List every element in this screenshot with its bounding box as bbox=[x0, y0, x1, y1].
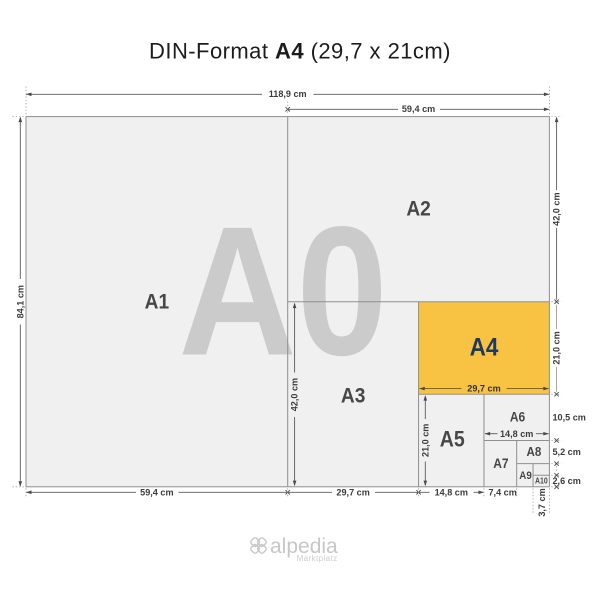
svg-text:118,9 cm: 118,9 cm bbox=[269, 89, 307, 99]
svg-text:A5: A5 bbox=[440, 427, 465, 451]
svg-text:42,0 cm: 42,0 cm bbox=[552, 192, 562, 225]
svg-text:42,0 cm: 42,0 cm bbox=[290, 378, 300, 411]
svg-text:84,1 cm: 84,1 cm bbox=[15, 285, 25, 318]
svg-text:Marktplatz: Marktplatz bbox=[297, 554, 338, 563]
svg-text:A3: A3 bbox=[341, 384, 365, 407]
svg-text:A2: A2 bbox=[406, 198, 430, 221]
svg-text:7,4 cm: 7,4 cm bbox=[489, 487, 517, 497]
svg-text:29,7 cm: 29,7 cm bbox=[336, 487, 369, 497]
svg-text:21,0 cm: 21,0 cm bbox=[420, 424, 430, 457]
svg-text:10,5 cm: 10,5 cm bbox=[553, 412, 586, 422]
svg-text:A9: A9 bbox=[519, 471, 532, 483]
svg-text:59,4 cm: 59,4 cm bbox=[140, 487, 173, 497]
svg-text:A0: A0 bbox=[178, 188, 387, 394]
svg-text:2,6 cm: 2,6 cm bbox=[553, 476, 581, 486]
svg-text:DIN-Format A4 (29,7 x 21cm): DIN-Format A4 (29,7 x 21cm) bbox=[149, 38, 451, 63]
svg-text:14,8 cm: 14,8 cm bbox=[435, 487, 468, 497]
svg-text:59,4 cm: 59,4 cm bbox=[402, 104, 435, 114]
svg-text:A1: A1 bbox=[145, 291, 169, 314]
svg-text:A7: A7 bbox=[493, 455, 508, 471]
svg-text:A10: A10 bbox=[535, 476, 548, 486]
svg-text:21,0 cm: 21,0 cm bbox=[552, 331, 562, 364]
svg-text:A8: A8 bbox=[527, 445, 542, 460]
svg-text:3,7 cm: 3,7 cm bbox=[537, 488, 547, 516]
svg-text:14,8 cm: 14,8 cm bbox=[500, 429, 533, 439]
svg-text:29,7 cm: 29,7 cm bbox=[467, 384, 500, 394]
svg-text:A6: A6 bbox=[510, 409, 525, 425]
svg-text:5,2 cm: 5,2 cm bbox=[553, 447, 581, 457]
svg-text:A4: A4 bbox=[470, 334, 499, 363]
